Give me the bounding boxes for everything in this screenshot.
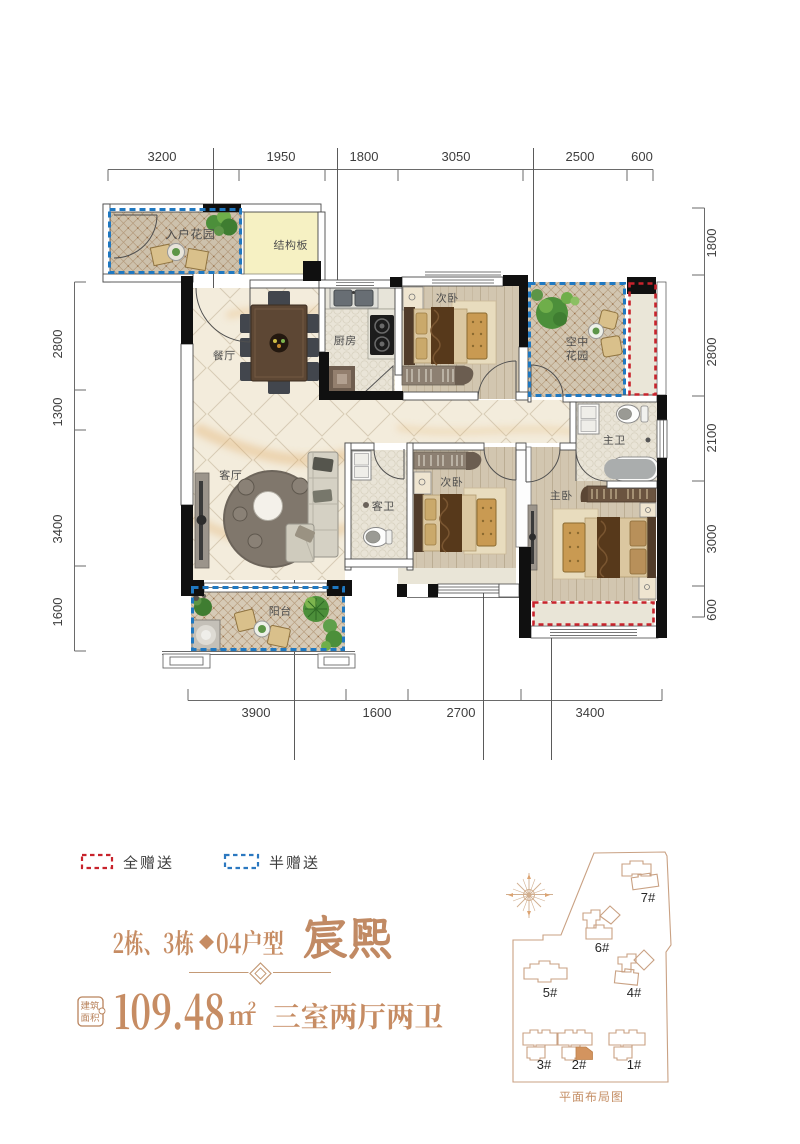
svg-text:3000: 3000 [704,525,719,554]
svg-text:4#: 4# [627,985,642,1000]
svg-text:600: 600 [631,149,653,164]
svg-text:2800: 2800 [50,330,65,359]
svg-text:600: 600 [704,599,719,621]
svg-text:5#: 5# [543,985,558,1000]
svg-text:2700: 2700 [447,705,476,720]
svg-text:3400: 3400 [50,515,65,544]
svg-text:1600: 1600 [50,598,65,627]
svg-text:3200: 3200 [148,149,177,164]
svg-text:3900: 3900 [242,705,271,720]
svg-text:1#: 1# [627,1057,642,1072]
svg-text:1800: 1800 [350,149,379,164]
svg-text:2500: 2500 [566,149,595,164]
svg-text:3050: 3050 [442,149,471,164]
svg-text:1600: 1600 [363,705,392,720]
svg-text:1800: 1800 [704,229,719,258]
svg-text:3#: 3# [537,1057,552,1072]
svg-text:2100: 2100 [704,424,719,453]
svg-text:7#: 7# [641,890,656,905]
svg-text:2#: 2# [572,1057,587,1072]
svg-text:2800: 2800 [704,338,719,367]
svg-text:3400: 3400 [576,705,605,720]
svg-text:6#: 6# [595,940,610,955]
svg-text:1950: 1950 [267,149,296,164]
svg-text:1300: 1300 [50,398,65,427]
